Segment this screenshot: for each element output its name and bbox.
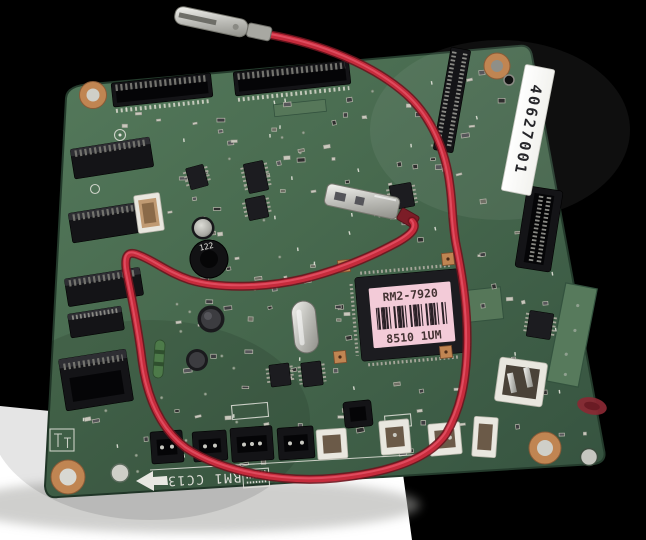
smd-part xyxy=(418,237,424,242)
electrolytic-capacitor xyxy=(198,306,225,333)
smd-part xyxy=(314,262,316,266)
smd-part xyxy=(338,416,345,419)
smd-part xyxy=(435,165,442,170)
smd-part xyxy=(343,113,347,117)
smd-part xyxy=(388,183,392,186)
smd-part xyxy=(297,158,305,163)
smd-part xyxy=(583,432,586,435)
smd-part xyxy=(262,219,265,222)
smd-part xyxy=(268,306,273,310)
smd-part xyxy=(302,131,305,134)
smd-part xyxy=(283,102,291,107)
smd-part xyxy=(204,393,207,396)
smd-part xyxy=(543,301,548,305)
mounting-hole-top-left xyxy=(80,82,107,109)
smd-part xyxy=(192,197,196,201)
smd-part xyxy=(245,350,253,354)
mounting-hole-bottom-right xyxy=(529,432,561,464)
smd-part xyxy=(136,470,139,473)
smd-part xyxy=(104,409,107,412)
smd-part xyxy=(413,164,418,169)
smd-part xyxy=(280,136,283,139)
connector-white-right xyxy=(494,357,548,407)
smd-part xyxy=(220,354,223,357)
smd-part xyxy=(233,414,235,418)
smd-part xyxy=(299,357,301,361)
smd-part xyxy=(228,157,231,160)
smd-part xyxy=(160,396,163,399)
smd-part xyxy=(521,300,525,304)
smd-part xyxy=(278,255,281,258)
smd-part xyxy=(479,70,485,75)
connector-bottom-4 xyxy=(277,426,315,460)
smd-part xyxy=(480,199,487,204)
ic-barcode-label: RM2-7920 8510 1UM xyxy=(369,281,456,348)
smd-part xyxy=(421,421,426,425)
connector-left-5 xyxy=(58,349,133,411)
smd-part xyxy=(211,354,217,358)
smd-part xyxy=(311,190,316,193)
smd-part xyxy=(242,386,249,389)
plain-hole xyxy=(581,449,598,466)
smd-part xyxy=(397,162,402,167)
pcb-photo-canvas: 122 RM2-7920 8510 1UM xyxy=(0,0,646,540)
smd-part xyxy=(559,433,564,436)
smd-part xyxy=(481,304,485,308)
black-component xyxy=(343,400,374,429)
smd-part xyxy=(167,211,172,214)
smd-part xyxy=(235,257,240,260)
smd-part xyxy=(506,297,513,301)
electrolytic-capacitor xyxy=(192,217,215,240)
smd-part xyxy=(272,128,277,131)
ic-soic8 xyxy=(299,361,326,388)
via-hole xyxy=(504,75,514,85)
smd-part xyxy=(283,156,290,160)
smd-part xyxy=(225,416,232,420)
smd-part xyxy=(280,190,285,193)
connector-bottom-3 xyxy=(230,426,274,463)
smd-part xyxy=(371,90,374,93)
smd-part xyxy=(122,124,128,128)
connector-bottom-6-white xyxy=(379,419,412,455)
smd-part xyxy=(144,437,148,442)
smd-part xyxy=(226,267,231,271)
smd-part xyxy=(515,424,519,429)
smd-part xyxy=(298,149,305,153)
smd-part xyxy=(176,321,182,324)
smd-part xyxy=(332,120,337,125)
smd-part xyxy=(156,119,161,121)
smd-part xyxy=(346,335,352,340)
smd-part xyxy=(218,129,223,133)
smd-part xyxy=(417,409,423,412)
smd-part xyxy=(232,367,235,370)
smd-part xyxy=(344,312,350,316)
smd-part xyxy=(276,161,281,166)
smd-part xyxy=(362,115,367,118)
axial-resistor-green xyxy=(153,340,166,379)
smd-part xyxy=(337,319,342,321)
mounting-hole-bottom-left xyxy=(51,460,85,494)
smd-part xyxy=(175,410,180,413)
smd-part xyxy=(235,420,238,423)
connector-bottom-8-white xyxy=(472,416,499,458)
smd-part xyxy=(394,382,401,386)
smd-part xyxy=(179,330,182,333)
smd-part xyxy=(135,454,138,457)
smd-part xyxy=(419,389,424,393)
smd-part xyxy=(176,303,179,306)
smd-part xyxy=(213,208,220,211)
connector-bottom-5-white xyxy=(316,428,348,460)
smd-part xyxy=(255,276,263,280)
smd-part xyxy=(206,300,213,304)
smd-part xyxy=(217,232,223,236)
smd-part xyxy=(345,180,349,184)
smd-part xyxy=(346,97,352,102)
smd-part xyxy=(431,158,436,161)
electrolytic-capacitor xyxy=(186,349,208,371)
smd-part xyxy=(498,98,505,103)
plain-hole xyxy=(111,464,129,482)
smd-part xyxy=(231,140,237,143)
smd-part xyxy=(135,112,142,115)
smd-part xyxy=(430,144,433,147)
smd-part xyxy=(469,125,475,128)
pcb-photo: 122 RM2-7920 8510 1UM xyxy=(0,0,646,540)
smd-part xyxy=(332,157,336,160)
smd-part xyxy=(224,306,232,310)
smd-part xyxy=(492,284,497,289)
smd-part xyxy=(480,253,486,257)
smd-part xyxy=(217,118,225,122)
smd-part xyxy=(279,125,281,129)
smd-part xyxy=(188,310,191,313)
smd-part xyxy=(461,133,470,138)
smd-part xyxy=(333,368,338,372)
connector-tan-2pin xyxy=(133,192,164,233)
smd-part xyxy=(335,305,341,309)
smd-part xyxy=(269,134,271,138)
smd-part xyxy=(248,317,253,321)
